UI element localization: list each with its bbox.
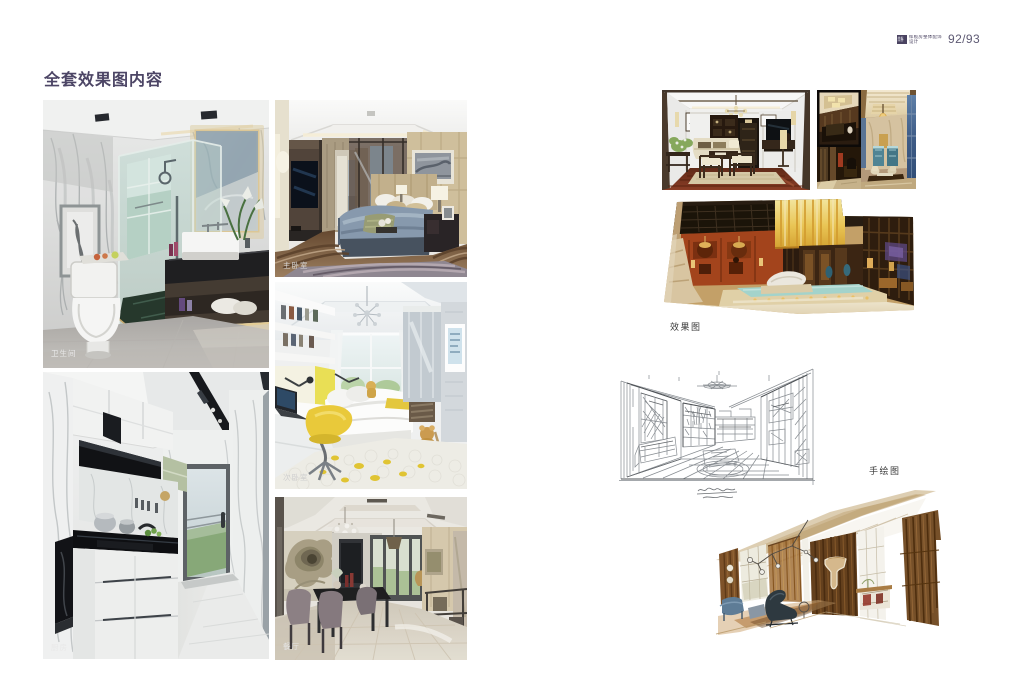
svg-text:餐厅: 餐厅 [283, 642, 300, 651]
svg-text:次卧室: 次卧室 [283, 472, 309, 482]
svg-text:厨房: 厨房 [51, 642, 68, 652]
svg-text:卫生间: 卫生间 [51, 348, 77, 358]
svg-text:主卧室: 主卧室 [283, 260, 309, 270]
